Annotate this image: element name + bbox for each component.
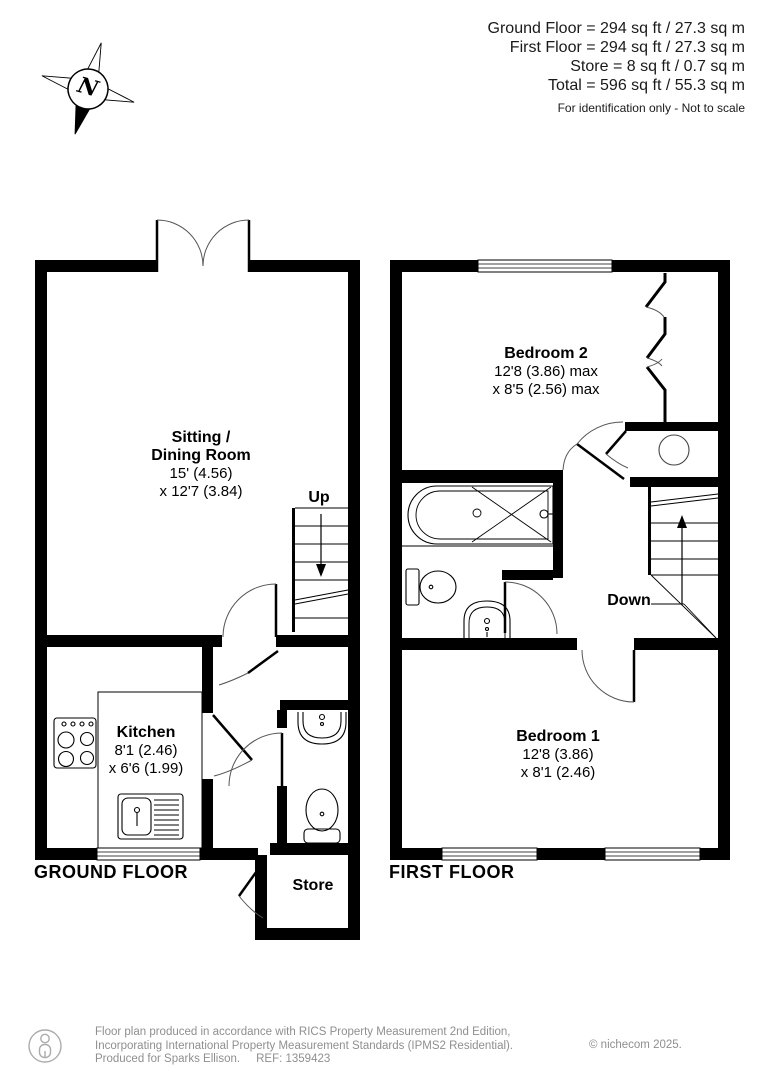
kitchen-label: Kitchen 8'1 (2.46) x 6'6 (1.99) [109, 724, 184, 778]
bedroom1-window-left [442, 848, 537, 860]
floorplan-page: Ground Floor = 294 sq ft / 27.3 sq m Fir… [0, 0, 764, 1080]
toilet-icon [406, 569, 456, 605]
french-doors [157, 220, 249, 272]
store-label: Store [293, 877, 334, 895]
area-line-store: Store = 8 sq ft / 0.7 sq m [488, 57, 745, 76]
area-line-first: First Floor = 294 sq ft / 27.3 sq m [488, 38, 745, 57]
sitting-dining-room-label: Sitting / Dining Room 15' (4.56) x 12'7 … [151, 429, 251, 501]
footer-line1: Floor plan produced in accordance with R… [95, 1026, 513, 1040]
bathtub-icon [402, 486, 553, 546]
footer-ref: REF: 1359423 [256, 1053, 330, 1065]
area-line-ground: Ground Floor = 294 sq ft / 27.3 sq m [488, 19, 745, 38]
ground-floor-plan [35, 220, 360, 940]
ground-floor-title: GROUND FLOOR [34, 862, 188, 883]
cylinder-icon [659, 435, 689, 465]
bedroom1-label: Bedroom 1 12'8 (3.86) x 8'1 (2.46) [516, 728, 600, 782]
wc-basin-icon [298, 712, 346, 744]
stairs-up [295, 508, 348, 618]
area-summary: Ground Floor = 294 sq ft / 27.3 sq m Fir… [488, 19, 745, 118]
basin-icon [464, 601, 510, 638]
kitchen-sink-icon [118, 794, 183, 839]
person-icon [29, 1030, 61, 1062]
stairs-up-label: Up [308, 489, 329, 507]
copyright-notice: © nichecom 2025. [589, 1039, 682, 1051]
first-floor-doors [505, 422, 634, 702]
stairs-down [651, 494, 718, 638]
ground-floor-doors [213, 584, 282, 918]
bedroom2-window [478, 260, 612, 272]
first-floor-title: FIRST FLOOR [389, 862, 515, 883]
footer-disclaimer: Floor plan produced in accordance with R… [95, 1026, 513, 1067]
stairs-down-label: Down [607, 592, 651, 610]
footer-line2: Incorporating International Property Mea… [95, 1040, 513, 1054]
stairs-up-arrow [316, 564, 326, 577]
footer-produced-for: Produced for Sparks Ellison. [95, 1053, 240, 1065]
cooker-icon [54, 718, 96, 768]
area-line-total: Total = 596 sq ft / 55.3 sq m [488, 76, 745, 95]
stairs-down-arrow [677, 515, 687, 528]
kitchen-window [97, 848, 200, 860]
bedroom2-label: Bedroom 2 12'8 (3.86) max x 8'5 (2.56) m… [492, 345, 599, 399]
bedroom1-window-right [605, 848, 700, 860]
ground-floor-walls [35, 260, 360, 940]
wardrobe-folding-doors [646, 273, 665, 422]
wc-toilet-icon [304, 789, 340, 843]
footer-line3: Produced for Sparks Ellison.REF: 1359423 [95, 1053, 513, 1067]
floorplan-drawing [0, 0, 764, 1080]
identification-disclaimer: For identification only - Not to scale [488, 99, 745, 118]
